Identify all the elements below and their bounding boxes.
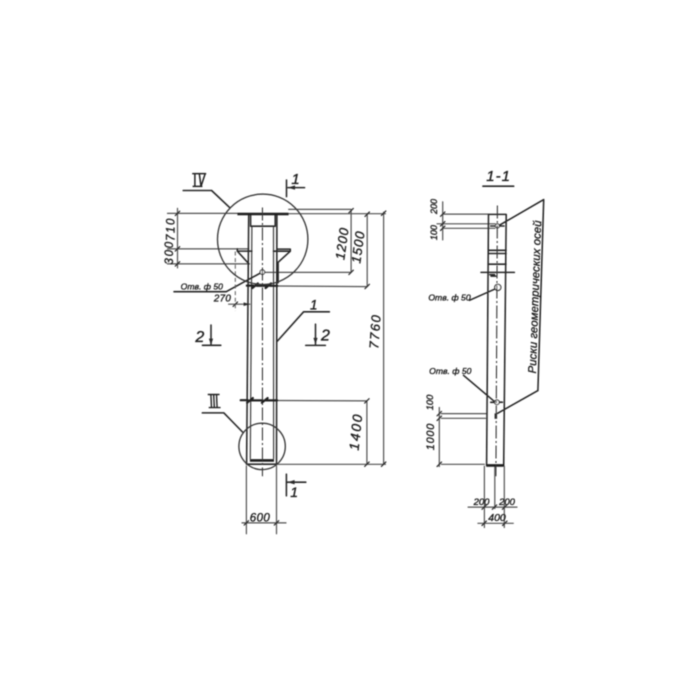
svg-text:200: 200 xyxy=(473,497,491,508)
svg-text:1: 1 xyxy=(290,484,298,500)
svg-text:100: 100 xyxy=(425,394,435,410)
svg-text:300: 300 xyxy=(164,240,176,265)
svg-text:270: 270 xyxy=(213,293,231,304)
svg-text:400: 400 xyxy=(488,512,506,524)
svg-text:1: 1 xyxy=(291,171,299,188)
svg-text:600: 600 xyxy=(250,512,271,524)
svg-text:2: 2 xyxy=(194,329,204,346)
svg-text:Отв. ф 50: Отв. ф 50 xyxy=(181,282,223,292)
svg-text:100: 100 xyxy=(429,225,439,240)
svg-text:200: 200 xyxy=(498,497,516,508)
svg-text:7760: 7760 xyxy=(366,313,383,349)
svg-text:Отв. ф 50: Отв. ф 50 xyxy=(429,366,471,376)
svg-text:1-1: 1-1 xyxy=(486,168,511,185)
svg-text:1000: 1000 xyxy=(425,423,437,450)
svg-text:Отв. ф 50: Отв. ф 50 xyxy=(428,292,470,302)
svg-text:710: 710 xyxy=(166,217,178,241)
svg-text:2: 2 xyxy=(320,328,330,345)
svg-text:200: 200 xyxy=(429,199,439,215)
svg-text:1: 1 xyxy=(310,298,318,313)
